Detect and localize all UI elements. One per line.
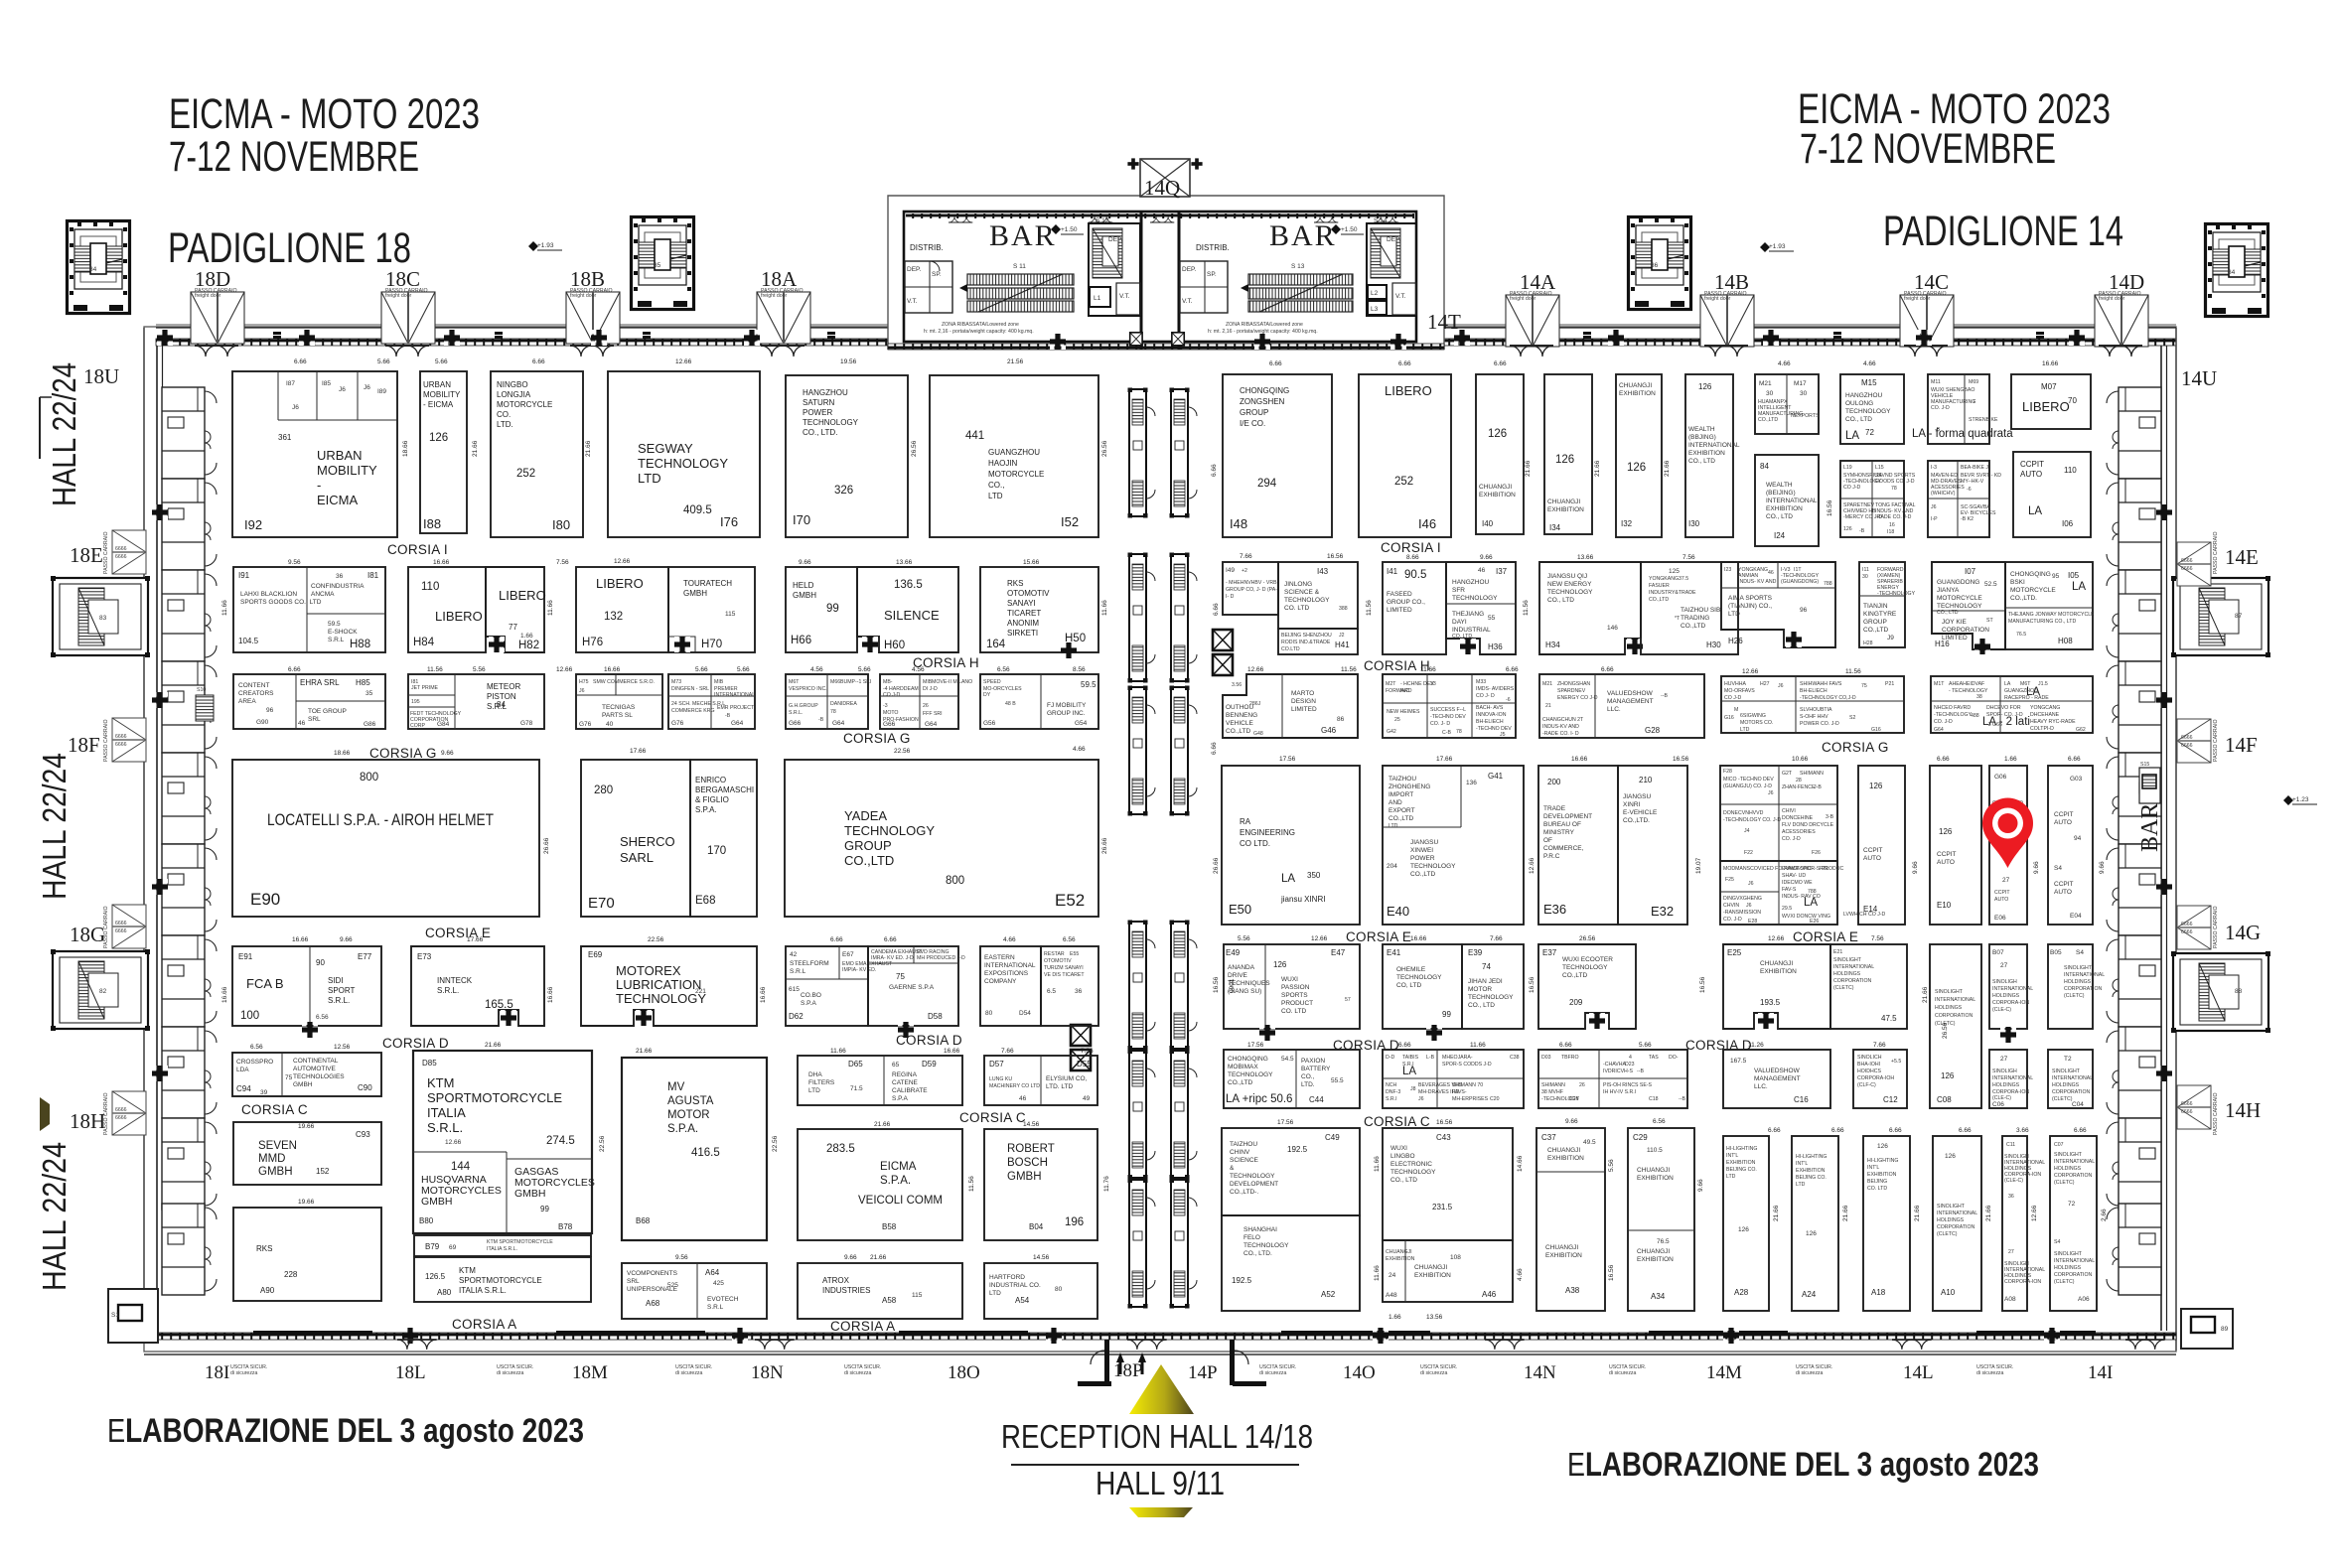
svg-text:INT'L: INT'L [1796,1161,1808,1167]
svg-text:S4: S4 [2054,1239,2060,1245]
svg-text:I87: I87 [286,380,295,387]
svg-text:INTERNATIONAL: INTERNATIONAL [1992,1075,2033,1081]
svg-text:I30: I30 [1688,519,1700,528]
svg-text:C18: C18 [1649,1096,1659,1102]
svg-text:INTERNATIONAL: INTERNATIONAL [1766,498,1818,504]
svg-text:-TECHNOLOGY: -TECHNOLOGY [1877,591,1916,597]
svg-text:A68: A68 [646,1299,660,1308]
svg-text:4.56: 4.56 [810,666,823,673]
svg-text:27: 27 [2002,877,2010,884]
svg-text:HOLDINGS: HOLDINGS [2054,1166,2082,1172]
svg-text:27: 27 [2000,962,2008,969]
svg-text:MANUFACTURING CO., LTD: MANUFACTURING CO., LTD [2008,619,2076,625]
svg-text:CORSIA C: CORSIA C [241,1102,308,1117]
svg-text:22.56: 22.56 [894,748,911,755]
svg-text:C06: C06 [1992,1101,2004,1108]
svg-text:CORSIA E: CORSIA E [1346,929,1411,944]
svg-text:CCPIT: CCPIT [1994,890,2010,896]
svg-text:PASSO CARRAIO: PASSO CARRAIO [2213,1092,2219,1135]
svg-text:13.56: 13.56 [1426,1314,1443,1321]
svg-text:-B: -B [1859,528,1865,534]
svg-text:GUANGDONG: GUANGDONG [1937,579,1979,586]
svg-text:SINOLIGHT: SINOLIGHT [1937,1204,1966,1210]
svg-text:90.5: 90.5 [1404,569,1426,581]
svg-text:INTERNATIONAL: INTERNATIONAL [714,692,755,698]
svg-text:CO.,LTD: CO.,LTD [1649,597,1669,603]
svg-text:71.5: 71.5 [850,1085,863,1092]
svg-text:E04: E04 [2070,913,2082,920]
svg-text:13.66: 13.66 [1577,554,1594,561]
svg-text:H82: H82 [518,640,539,651]
svg-text:HELD: HELD [793,581,814,590]
svg-text:ELABORAZIONE DEL 3 agosto 202: ELABORAZIONE DEL 3 agosto 2023 [1567,1446,2039,1484]
svg-text:72: 72 [1865,428,1874,437]
svg-text:WUXI: WUXI [1281,976,1298,983]
svg-text:MOTORCYCLE: MOTORCYCLE [1937,595,1982,602]
svg-text:IDECMO WE: IDECMO WE [1782,880,1813,886]
svg-text:18P: 18P [1113,1360,1143,1381]
svg-text:CO, LTD: CO, LTD [1396,982,1421,989]
svg-text:GROUP: GROUP [1240,408,1268,417]
svg-text:I34: I34 [1549,523,1561,532]
svg-text:TECHNOLOGY: TECHNOLOGY [1410,863,1456,870]
svg-text:I06: I06 [2062,519,2074,528]
svg-text:KTM: KTM [427,1075,454,1090]
svg-text:S.R.L.: S.R.L. [427,1120,463,1135]
svg-text:MV: MV [667,1081,685,1093]
svg-text:COMMERCE,: COMMERCE, [1543,845,1584,852]
svg-text:14M: 14M [1706,1362,1742,1383]
svg-text:AUTO: AUTO [1937,859,1955,866]
svg-text:DEVELOPMENT: DEVELOPMENT [1543,813,1592,820]
svg-text:S.R.L: S.R.L [328,637,345,643]
svg-text:MMD: MMD [258,1153,285,1165]
svg-text:GMBH: GMBH [258,1166,293,1178]
svg-text:SPORTMOTORCYCLE: SPORTMOTORCYCLE [427,1090,562,1105]
svg-text:CALIBRATE: CALIBRATE [892,1087,928,1094]
svg-text:21.66: 21.66 [870,1254,887,1261]
svg-text:21.66: 21.66 [1773,1205,1780,1221]
svg-text:78: 78 [1891,486,1897,492]
svg-text:HOLDINGS: HOLDINGS [1833,971,1861,977]
svg-text:FELO: FELO [1243,1234,1260,1241]
svg-text:EXHIBITION: EXHIBITION [1760,968,1797,975]
svg-text:488: 488 [1971,713,1979,719]
svg-text:S1: S1 [111,1312,119,1319]
svg-text:ENGINEERING: ENGINEERING [1240,828,1295,837]
svg-text:DHCEHANE: DHCEHANE [2030,712,2060,718]
svg-text:78: 78 [830,709,836,715]
svg-text:C38: C38 [1510,1055,1520,1061]
svg-text:S.R.L.: S.R.L. [328,996,350,1005]
svg-text:CORPORATION: CORPORATION [1942,627,1989,634]
svg-text:30: 30 [1766,390,1774,397]
svg-text:G62: G62 [2076,727,2086,733]
svg-text:4.66: 4.66 [1863,360,1876,367]
svg-text:IMPORT: IMPORT [1389,791,1413,798]
svg-text:EXHIBITION: EXHIBITION [1637,1175,1674,1182]
svg-text:KTM SPORTMOTORCYCLE: KTM SPORTMOTORCYCLE [487,1239,553,1245]
svg-text:17.56: 17.56 [1247,1042,1264,1049]
svg-text:LTD: LTD [1740,727,1750,733]
svg-text:LTD: LTD [808,1087,820,1094]
svg-text:DNF-3: DNF-3 [1386,1089,1400,1095]
svg-text:167.5: 167.5 [1730,1058,1747,1065]
svg-text:B78: B78 [558,1222,573,1231]
svg-text:G46: G46 [1321,726,1337,735]
svg-text:5.56: 5.56 [473,666,486,673]
svg-text:CO. LTD: CO. LTD [1284,605,1309,612]
svg-text:75: 75 [896,972,905,981]
svg-text:-CHAVHA: -CHAVHA [1603,1062,1627,1068]
svg-text:EXHIBITION: EXHIBITION [1688,450,1725,457]
svg-text:CORP: CORP [410,723,426,729]
svg-text:21.66: 21.66 [1914,1205,1921,1221]
svg-text:- TECHNOLOGY: - TECHNOLOGY [1949,688,1988,694]
svg-text:6666: 6666 [2181,558,2193,564]
svg-text:JINLONG: JINLONG [1284,581,1312,588]
svg-text:V.T.: V.T. [1182,298,1193,305]
svg-text:JIANGSU QIJ: JIANGSU QIJ [1547,573,1587,580]
svg-text:I81: I81 [367,571,379,580]
svg-text:CORPORATION: CORPORATION [1937,1224,1974,1230]
svg-text:VALUEDSHOW: VALUEDSHOW [1754,1068,1801,1074]
svg-text:800: 800 [946,875,964,887]
svg-text:ELABORAZIONE DEL 3 agosto 202: ELABORAZIONE DEL 3 agosto 2023 [107,1412,584,1450]
svg-text:425: 425 [713,1280,724,1287]
svg-text:DONCEHINE: DONCEHINE [1782,815,1814,821]
svg-text:6.66: 6.66 [1506,666,1519,673]
svg-text:57: 57 [1345,997,1351,1003]
svg-text:12.56: 12.56 [334,1044,351,1051]
svg-text:M17: M17 [1794,380,1807,387]
svg-text:17.66: 17.66 [1436,756,1453,763]
svg-text:7.66: 7.66 [1873,1042,1886,1049]
svg-text:100: 100 [240,1010,259,1022]
svg-text:PASSO CARRAIO: PASSO CARRAIO [103,531,109,574]
svg-text:6666: 6666 [2181,566,2193,572]
svg-text:FAVS-: FAVS- [1452,1089,1467,1095]
svg-text:7-12 NOVEMBRE: 7-12 NOVEMBRE [169,133,419,181]
svg-text:di sicurezza: di sicurezza [1259,1370,1287,1376]
svg-text:D55: D55 [1077,1060,1092,1069]
svg-text:CO.,LTD: CO.,LTD [1863,627,1888,634]
svg-text:GROUP INC.: GROUP INC. [1047,710,1086,717]
svg-text:V.T.: V.T. [1395,293,1406,300]
svg-text:9.66: 9.66 [1565,1118,1578,1125]
svg-text:88: 88 [2235,988,2243,995]
svg-text:IMRA- KV ED. J-D: IMRA- KV ED. J-D [871,955,914,961]
svg-text:F22: F22 [1744,850,1753,856]
svg-text:126: 126 [1627,462,1646,474]
svg-text:11.56: 11.56 [968,1176,975,1192]
svg-text:14O: 14O [1343,1362,1376,1383]
svg-text:110: 110 [2064,466,2077,475]
svg-text:6.66: 6.66 [288,666,301,673]
svg-text:22.56: 22.56 [772,1135,779,1152]
svg-text:BOSCH: BOSCH [1007,1157,1048,1169]
svg-text:B58: B58 [882,1222,897,1231]
svg-text:14F: 14F [2225,733,2258,757]
svg-text:NEW HEIMES: NEW HEIMES [1387,709,1420,715]
svg-text:PASSO CARRAIO: PASSO CARRAIO [103,1092,109,1135]
svg-text:ENRICO: ENRICO [695,776,726,784]
svg-text:LDA: LDA [236,1067,249,1073]
svg-text:46: 46 [1478,567,1486,574]
svg-text:6666: 6666 [115,546,127,552]
svg-text:S.R.I: S.R.I [1386,1096,1397,1102]
svg-text:6.66: 6.66 [1211,742,1218,755]
svg-text:jiansu XINRI: jiansu XINRI [1280,895,1325,904]
svg-text:ZONA RIBASSATA/Lowered zone: ZONA RIBASSATA/Lowered zone [942,322,1019,328]
svg-text:L-B: L-B [1426,1055,1435,1061]
svg-text:CHUANGJI: CHUANGJI [1479,484,1512,491]
svg-text:96: 96 [266,707,274,714]
svg-text:SILENCE: SILENCE [884,608,940,623]
svg-text:(BBJING): (BBJING) [1688,434,1716,441]
svg-text:MOBILITY: MOBILITY [423,390,461,399]
svg-text:CO J-D: CO J-D [883,692,901,698]
svg-text:SP.: SP. [932,271,942,278]
svg-text:MOVE-II MILANO: MOVE-II MILANO [932,679,972,685]
svg-text:LTD: LTD [1726,1174,1736,1180]
svg-text:86: 86 [1651,262,1659,269]
svg-text:BEA-BIKE J: BEA-BIKE J [1961,465,1988,471]
svg-text:CO., LTD: CO., LTD [1688,458,1715,465]
svg-text:H75: H75 [579,679,589,685]
svg-text:6666: 6666 [115,928,127,934]
svg-text:di sicurezza: di sicurezza [675,1370,703,1376]
svg-text:ITALIA S.R.L.: ITALIA S.R.L. [487,1246,517,1252]
svg-text:126: 126 [1939,827,1953,836]
svg-text:HANGZHOU: HANGZHOU [803,388,848,397]
svg-text:WUXI: WUXI [1390,1145,1407,1152]
svg-text:M73: M73 [671,679,681,685]
svg-text:DHCEVO FOR: DHCEVO FOR [1986,705,2021,711]
svg-text:OUTHOU: OUTHOU [1226,704,1253,711]
svg-text:SIDI: SIDI [328,976,344,985]
svg-text:RECEPTION HALL 14/18: RECEPTION HALL 14/18 [1001,1418,1313,1455]
svg-text:TIANJIN: TIANJIN [1863,603,1888,610]
svg-text:HI-LIGHTING: HI-LIGHTING [1726,1146,1757,1152]
svg-text:HOLDINGS: HOLDINGS [1935,1005,1963,1011]
svg-text:J2: J2 [1339,633,1345,639]
svg-text:5.66: 5.66 [737,666,750,673]
svg-text:J-B: J-B [1814,784,1822,790]
svg-text:8.56: 8.56 [1073,666,1086,673]
svg-text:INTERNATIONAL: INTERNATIONAL [1688,442,1740,449]
svg-text:I85: I85 [322,380,331,387]
svg-text:18L: 18L [395,1362,426,1383]
svg-text:freight door: freight door [1510,296,1536,302]
svg-text:SINOLIGHT: SINOLIGHT [2064,965,2093,971]
svg-text:12.66: 12.66 [675,358,692,365]
svg-text:46: 46 [1019,1095,1027,1102]
svg-text:LTD: LTD [1796,1182,1806,1188]
svg-text:136: 136 [1466,780,1477,786]
svg-text:C90: C90 [358,1083,372,1092]
svg-text:PASSO CARRAIO: PASSO CARRAIO [2213,719,2219,762]
svg-text:108: 108 [1450,1254,1461,1261]
svg-text:CORPORATION: CORPORATION [2054,1173,2092,1179]
svg-text:49: 49 [1083,1095,1091,1102]
svg-text:(WHICHV): (WHICHV) [1931,491,1956,497]
svg-text:NHCEO FAVRD: NHCEO FAVRD [1934,705,1971,711]
svg-text:18U: 18U [83,364,119,388]
svg-text:409.5: 409.5 [683,504,712,516]
svg-text:AUTO: AUTO [1994,897,2008,903]
svg-text:E40: E40 [1387,904,1409,919]
svg-text:VCOMPONENTS: VCOMPONENTS [627,1270,678,1277]
svg-text:H85: H85 [356,678,370,687]
svg-text:12.66: 12.66 [2031,1205,2038,1221]
svg-text:350: 350 [1307,871,1321,880]
svg-text:SHIMANN: SHIMANN [1541,1082,1565,1088]
svg-text:-6: -6 [1967,487,1972,493]
svg-text:CONFINDUSTRIA: CONFINDUSTRIA [311,583,365,590]
svg-text:KINGTYRE: KINGTYRE [1863,611,1897,618]
svg-text:TECHNOLOGY: TECHNOLOGY [1547,589,1593,596]
svg-text:165.5: 165.5 [485,999,513,1011]
svg-text:DEVELOPMENT: DEVELOPMENT [1230,1181,1278,1188]
svg-text:12.66: 12.66 [556,666,573,673]
svg-text:82: 82 [99,988,107,995]
svg-text:16.66: 16.66 [1571,756,1588,763]
svg-text:26.66: 26.66 [1101,837,1108,854]
svg-text:LA: LA [2004,681,2011,687]
svg-text:12.66: 12.66 [1768,935,1785,942]
svg-text:HOLDINGS: HOLDINGS [1992,1082,2020,1088]
svg-text:(CLETC): (CLETC) [2054,1279,2075,1285]
svg-text:IVDRICVH-S: IVDRICVH-S [1603,1069,1634,1074]
svg-text:(CLF-C): (CLF-C) [1857,1082,1876,1088]
svg-text:(CLE-C): (CLE-C) [1992,1007,2011,1013]
svg-text:6.66: 6.66 [294,358,307,365]
svg-text:E68: E68 [695,895,715,907]
svg-text:6666: 6666 [2181,922,2193,927]
svg-text:CATENE: CATENE [892,1079,919,1086]
svg-text:11.56: 11.56 [1845,668,1861,675]
svg-text:VEICOLI COMM: VEICOLI COMM [858,1195,943,1207]
svg-text:16.56: 16.56 [1327,553,1344,560]
svg-text:SIRKETI: SIRKETI [1007,629,1038,638]
svg-text:TECNIGAS: TECNIGAS [602,704,636,711]
svg-text:E69: E69 [588,950,603,959]
svg-text:CCPIT: CCPIT [2054,811,2074,818]
svg-text:TECHNOLOGY: TECHNOLOGY [1937,603,1982,610]
svg-text:BAR: BAR [2137,803,2163,852]
svg-text:9.66: 9.66 [799,559,811,566]
svg-text:CORSIA C: CORSIA C [1364,1114,1430,1129]
svg-text:-B: -B [818,717,824,723]
svg-text:G2T: G2T [1782,771,1793,777]
svg-text:6.66: 6.66 [1494,360,1507,367]
svg-text:F21: F21 [1820,866,1828,872]
svg-text:TRADE: TRADE [1543,805,1566,812]
svg-text:E14: E14 [1863,905,1878,914]
svg-text:SINOLIGHT: SINOLIGHT [2054,1251,2083,1257]
svg-text:INDUS-KV AND: INDUS-KV AND [1542,724,1579,730]
svg-text:J6: J6 [364,384,370,391]
svg-text:525: 525 [667,1282,678,1289]
svg-text:G03: G03 [2070,776,2083,783]
svg-text:D03: D03 [1541,1055,1551,1061]
svg-text:-: - [317,478,321,493]
svg-text:CORPORA-IOH: CORPORA-IOH [1857,1075,1894,1081]
svg-text:L3: L3 [1371,306,1379,313]
svg-text:A38: A38 [1565,1286,1580,1295]
svg-text:HANGZHOU: HANGZHOU [1452,579,1490,586]
svg-text:TAIBIS: TAIBIS [1402,1055,1419,1061]
svg-text:-3: -3 [883,703,888,709]
svg-text:JIANYA: JIANYA [1937,587,1960,594]
svg-text:TBFRO: TBFRO [1561,1055,1579,1061]
svg-text:CO. J-D: CO. J-D [1782,836,1801,842]
svg-text:LINGBO: LINGBO [1390,1153,1415,1160]
svg-text:& FIGLIO: & FIGLIO [695,795,729,804]
svg-text:4.66: 4.66 [1778,360,1791,367]
svg-text:BAR: BAR [989,219,1057,252]
svg-text:F25: F25 [1725,877,1734,883]
svg-text:TECHNOLOGY: TECHNOLOGY [844,823,935,838]
svg-text:MOTORCYCLE: MOTORCYCLE [988,470,1044,479]
svg-text:CHUANGJI: CHUANGJI [1386,1249,1412,1255]
svg-text:H30: H30 [1706,641,1721,649]
svg-text:7.66: 7.66 [1490,935,1503,942]
svg-text:M33: M33 [1476,679,1486,685]
svg-text:FFF SRI: FFF SRI [923,711,943,717]
svg-text:MIB: MIB [714,679,724,685]
svg-text:C94: C94 [236,1084,251,1093]
svg-text:SRL: SRL [308,716,321,723]
svg-text:9.56: 9.56 [288,559,301,566]
svg-text:RA: RA [1240,817,1251,826]
svg-text:TURIZM SANAYI: TURIZM SANAYI [1044,965,1084,971]
svg-text:75: 75 [285,1074,293,1081]
svg-text:A52: A52 [1321,1290,1336,1299]
svg-text:16.56: 16.56 [1827,499,1833,516]
svg-text:18O: 18O [948,1362,980,1383]
svg-text:OULONG: OULONG [1845,400,1873,407]
svg-text:16.66: 16.66 [1410,935,1427,942]
svg-text:70: 70 [2068,396,2077,405]
svg-text:36: 36 [2008,1194,2014,1200]
svg-text:VE DIS TICARET: VE DIS TICARET [1044,972,1085,978]
svg-text:FCA B: FCA B [246,976,284,991]
svg-text:METEOR: METEOR [487,682,520,691]
svg-text:210: 210 [1639,776,1653,784]
svg-text:30: 30 [1862,574,1868,580]
svg-text:B68: B68 [636,1216,651,1225]
svg-text:LA +ripc 50.6: LA +ripc 50.6 [1226,1093,1292,1105]
svg-text:HI-LIGHTING: HI-LIGHTING [1867,1158,1898,1164]
svg-text:A80: A80 [437,1288,452,1297]
svg-text:16.66: 16.66 [221,986,228,1003]
svg-text:E41: E41 [1387,948,1401,957]
svg-text:78: 78 [1456,729,1462,735]
svg-text:24: 24 [1389,1272,1396,1279]
svg-text:18.66: 18.66 [334,750,351,757]
svg-text:LTD: LTD [1389,823,1398,829]
svg-text:CO., LTD: CO., LTD [1766,513,1793,520]
svg-text:SPORTS: SPORTS [1281,992,1308,999]
svg-text:H27: H27 [1760,681,1770,687]
svg-text:CO. J-D: CO. J-D [1934,719,1953,725]
svg-text:EICMA: EICMA [317,493,359,507]
svg-text:G64: G64 [925,721,938,728]
svg-text:CO. LTD: CO. LTD [1867,1186,1887,1192]
svg-text:38: 38 [1976,694,1982,700]
